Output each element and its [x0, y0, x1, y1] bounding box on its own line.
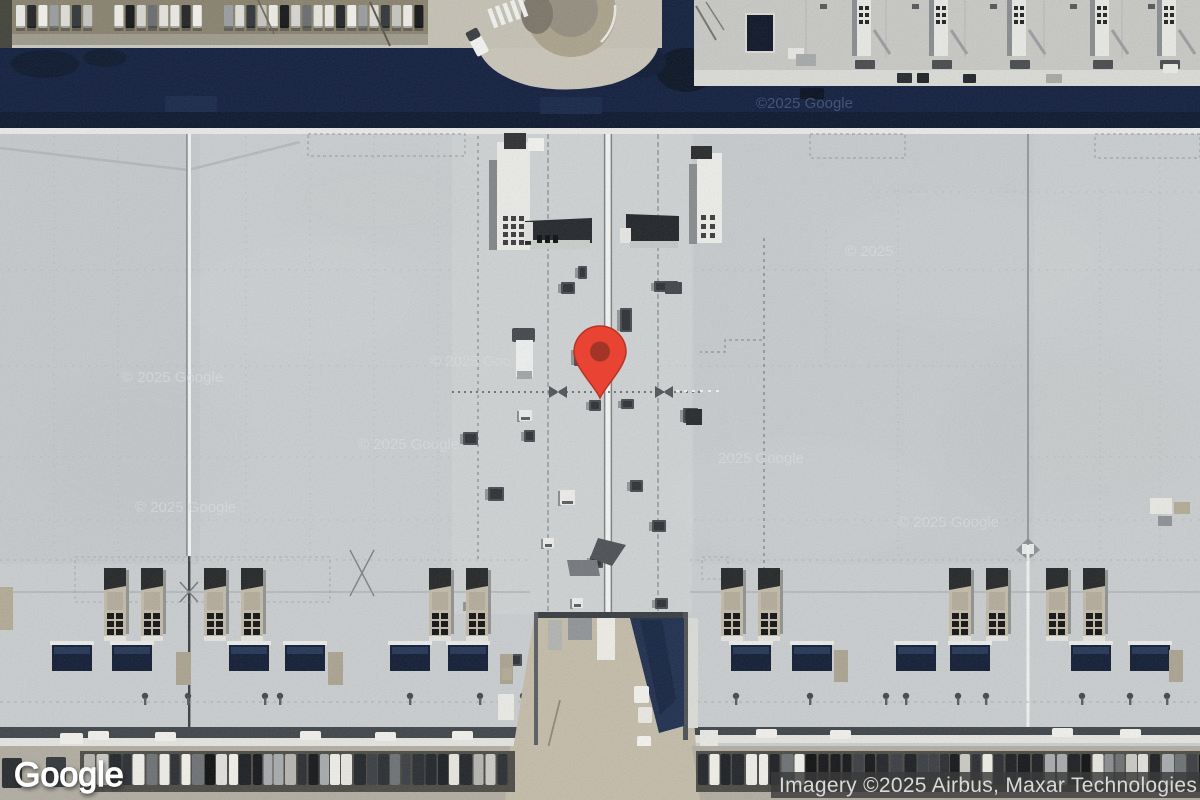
svg-text:Imagery ©2025 Airbus, Maxar Te: Imagery ©2025 Airbus, Maxar Technologies [779, 774, 1197, 797]
svg-text:Google: Google [14, 756, 124, 794]
